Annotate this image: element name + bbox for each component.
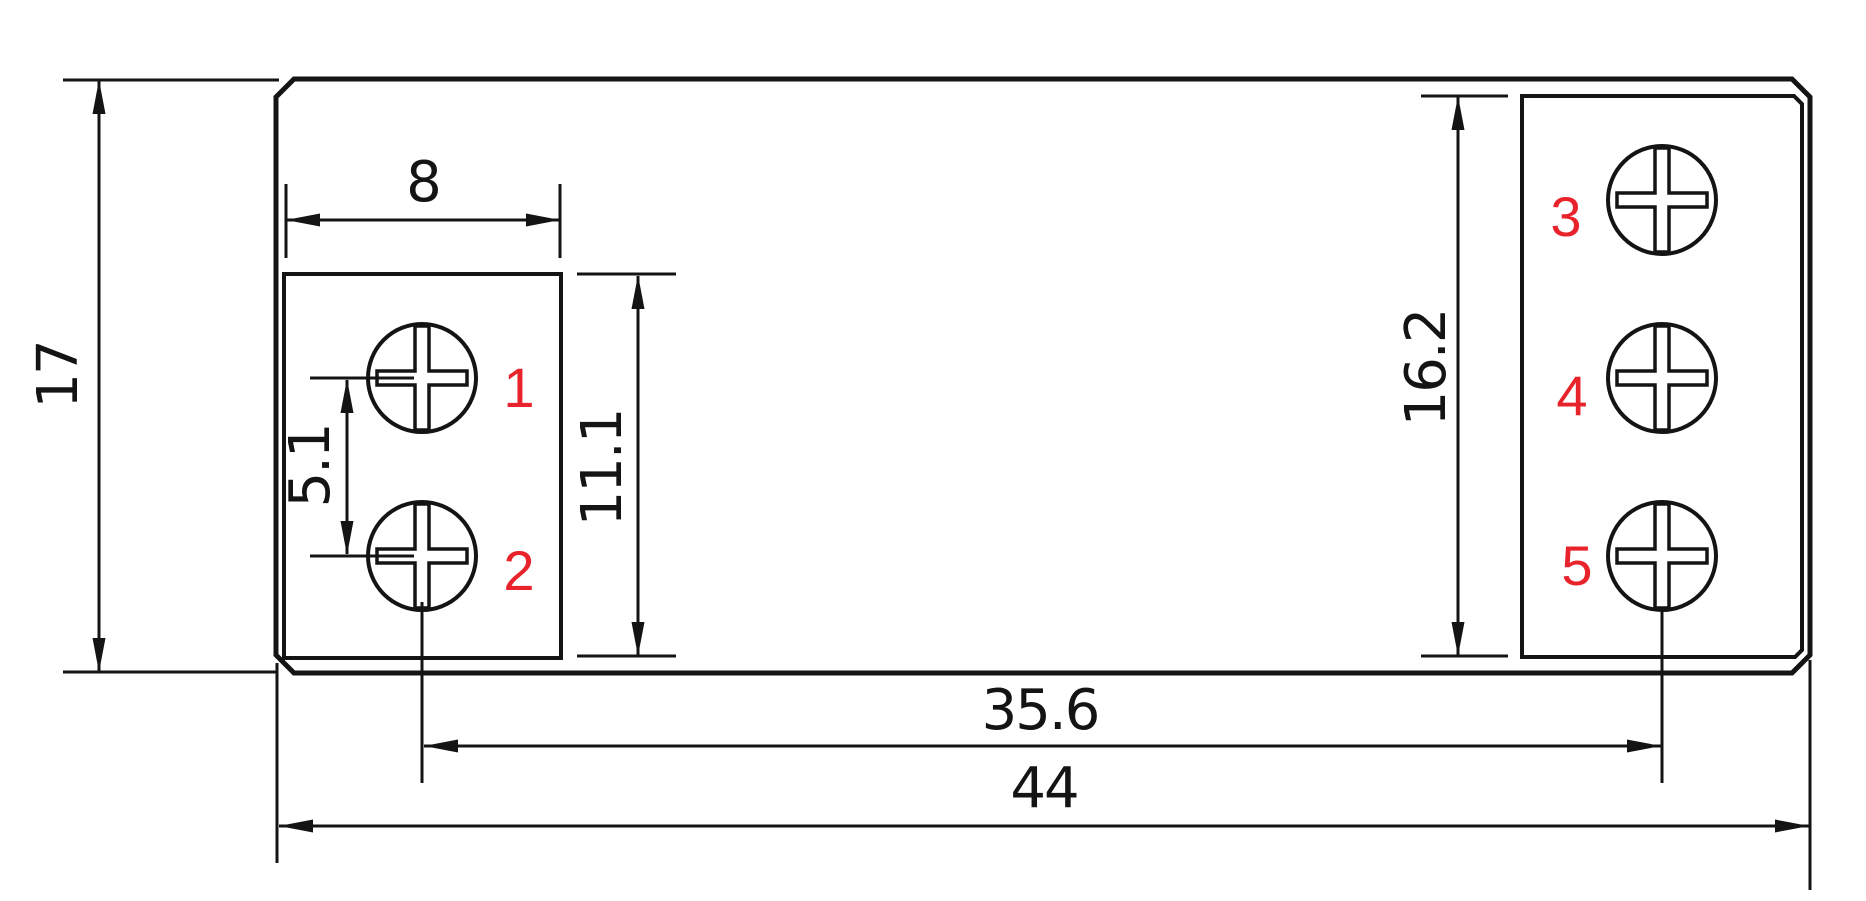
arrowhead-right-icon bbox=[1775, 820, 1809, 833]
arrowhead-down-icon bbox=[1452, 622, 1465, 656]
dim-right-block-height-label: 16.2 bbox=[1394, 310, 1459, 427]
arrowhead-left-icon bbox=[424, 740, 458, 753]
arrowhead-down-icon bbox=[341, 521, 354, 555]
dimension-drawing: 17 8 5.1 11.1 bbox=[0, 0, 1866, 901]
arrowhead-right-icon bbox=[526, 214, 560, 227]
dim-right-block-height: 16.2 bbox=[1394, 96, 1508, 656]
dim-screw-span-label: 35.6 bbox=[982, 678, 1099, 743]
drawing-canvas: 17 8 5.1 11.1 bbox=[0, 0, 1866, 901]
terminal-4-label: 4 bbox=[1556, 364, 1587, 427]
arrowhead-up-icon bbox=[341, 379, 354, 413]
dim-left-block-height: 11.1 bbox=[570, 274, 676, 656]
screw-terminal-5 bbox=[1608, 502, 1716, 610]
screw-terminal-3 bbox=[1608, 146, 1716, 254]
arrowhead-left-icon bbox=[286, 214, 320, 227]
dim-body-width-label: 44 bbox=[1010, 756, 1077, 821]
terminal-3-label: 3 bbox=[1550, 185, 1581, 248]
dim-left-block-width: 8 bbox=[286, 150, 560, 258]
terminal-2-label: 2 bbox=[503, 539, 534, 602]
arrowhead-up-icon bbox=[93, 80, 106, 114]
arrowhead-left-icon bbox=[279, 820, 313, 833]
dim-left-block-width-label: 8 bbox=[406, 150, 440, 215]
arrowhead-right-icon bbox=[1627, 740, 1661, 753]
arrowhead-down-icon bbox=[632, 622, 645, 656]
dim-left-block-height-label: 11.1 bbox=[570, 410, 635, 527]
screw-terminal-4 bbox=[1608, 324, 1716, 432]
terminal-5-label: 5 bbox=[1561, 534, 1592, 597]
dim-body-height-label: 17 bbox=[26, 341, 91, 408]
arrowhead-up-icon bbox=[632, 275, 645, 309]
arrowhead-down-icon bbox=[93, 638, 106, 672]
dim-body-height: 17 bbox=[26, 80, 279, 672]
arrowhead-up-icon bbox=[1452, 96, 1465, 130]
dim-screw-pitch-label: 5.1 bbox=[278, 424, 343, 507]
terminal-1-label: 1 bbox=[503, 356, 534, 419]
